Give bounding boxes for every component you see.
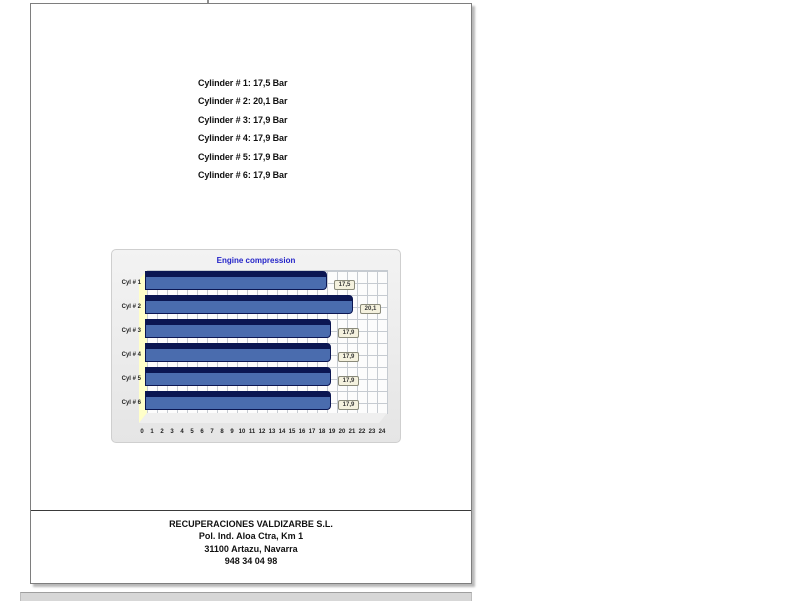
bar xyxy=(145,319,331,338)
footer-separator xyxy=(31,510,471,511)
bar xyxy=(145,367,331,386)
footer-line: RECUPERACIONES VALDIZARBE S.L. xyxy=(31,518,471,530)
bar-value-label: 20,1 xyxy=(360,304,381,314)
bar-value-label: 17,5 xyxy=(334,280,355,290)
reading-line: Cylinder # 2: 20,1 Bar xyxy=(198,92,287,110)
company-footer: RECUPERACIONES VALDIZARBE S.L.Pol. Ind. … xyxy=(31,518,471,567)
category-label: Cyl # 5 xyxy=(112,376,141,383)
compression-chart: Engine compression Cyl # 117,5Cyl # 220,… xyxy=(111,249,401,443)
reading-line: Cylinder # 3: 17,9 Bar xyxy=(198,111,287,129)
category-label: Cyl # 4 xyxy=(112,352,141,359)
footer-line: 31100 Artazu, Navarra xyxy=(31,543,471,555)
report-page: Cylinder # 1: 17,5 BarCylinder # 2: 20,1… xyxy=(30,3,472,584)
footer-line: 948 34 04 98 xyxy=(31,555,471,567)
reading-line: Cylinder # 5: 17,9 Bar xyxy=(198,148,287,166)
bar-value-label: 17,9 xyxy=(338,400,359,410)
category-label: Cyl # 6 xyxy=(112,400,141,407)
category-label: Cyl # 1 xyxy=(112,280,141,287)
footer-line: Pol. Ind. Aloa Ctra, Km 1 xyxy=(31,530,471,542)
bar xyxy=(145,391,331,410)
bar-value-label: 17,9 xyxy=(338,328,359,338)
compression-readings: Cylinder # 1: 17,5 BarCylinder # 2: 20,1… xyxy=(198,74,287,184)
reading-line: Cylinder # 4: 17,9 Bar xyxy=(198,129,287,147)
category-label: Cyl # 2 xyxy=(112,304,141,311)
bar-value-label: 17,9 xyxy=(338,376,359,386)
category-label: Cyl # 3 xyxy=(112,328,141,335)
chart-floor xyxy=(139,413,387,423)
bar xyxy=(145,343,331,362)
bar-value-label: 17,9 xyxy=(338,352,359,362)
bar xyxy=(145,271,327,290)
reading-line: Cylinder # 6: 17,9 Bar xyxy=(198,166,287,184)
bar xyxy=(145,295,353,314)
reading-line: Cylinder # 1: 17,5 Bar xyxy=(198,74,287,92)
x-tick-label: 24 xyxy=(375,429,389,436)
chart-plot: Cyl # 117,5Cyl # 220,1Cyl # 317,9Cyl # 4… xyxy=(112,250,400,442)
